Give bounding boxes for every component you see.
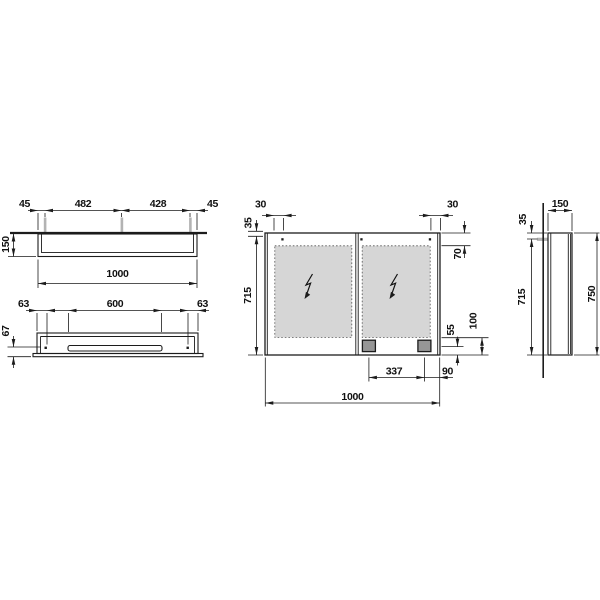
dim-label-total-height: 750: [586, 285, 598, 302]
side-view: 150 35 715 750: [516, 198, 600, 378]
dim-arrow: [12, 249, 16, 257]
dim-label-edge-right: 45: [207, 198, 219, 210]
dim-arrow: [12, 357, 16, 365]
dim-arrow: [595, 233, 599, 241]
dim-label-socket-edge: 90: [442, 366, 454, 378]
power-socket: [418, 340, 431, 351]
mounting-clip: [121, 218, 124, 234]
dim-arrow: [432, 401, 440, 405]
dim-arrow: [416, 376, 424, 380]
bottom-view: 63 600 63 67: [0, 298, 209, 368]
dim-arrow: [456, 339, 460, 347]
dim-label-door-height: 715: [516, 288, 528, 305]
dim-label-clip-span-right: 428: [150, 198, 167, 210]
dim-label-top-offset: 35: [243, 217, 255, 229]
dim-arrow: [12, 339, 16, 347]
dim-label-depth: 150: [0, 236, 12, 253]
dim-label-bottom-zone: 100: [468, 312, 480, 329]
dim-arrow: [47, 309, 55, 313]
cabinet-side-inner: [551, 234, 571, 355]
mirror-door-right: [362, 246, 430, 338]
dim-arrow: [595, 347, 599, 355]
dim-arrow: [189, 282, 197, 286]
dim-arrow: [29, 309, 37, 313]
dim-arrow: [12, 234, 16, 242]
dim-label-front-offset: 67: [0, 325, 12, 337]
top-view: 45 482 428 45 150 1000: [0, 198, 218, 288]
dim-arrow: [266, 214, 274, 218]
front-view: 30 30 35 715 70 55 100 337 90 1000: [242, 199, 489, 407]
screw-hole: [45, 347, 47, 349]
dim-arrow: [530, 347, 534, 355]
dim-label-socket-span: 337: [386, 366, 403, 378]
dim-label-edge-left: 45: [19, 198, 31, 210]
drawing-page: 45 482 428 45 150 1000 63 600 63 67: [0, 0, 600, 600]
hinge-pin-dot: [281, 238, 283, 240]
dim-label-hinge-left: 30: [255, 199, 267, 211]
dim-arrow: [265, 401, 273, 405]
mounting-clip: [189, 218, 192, 234]
dim-arrow: [255, 347, 259, 355]
cabinet-body-inner: [42, 234, 194, 253]
dim-arrow: [480, 347, 484, 355]
dim-label-width: 1000: [341, 391, 364, 403]
dim-arrow: [30, 209, 38, 213]
dim-label-door-height: 715: [242, 287, 254, 304]
dim-arrow: [480, 338, 484, 346]
dim-label-edge-left: 63: [18, 298, 30, 310]
dim-arrow: [255, 223, 259, 231]
dim-arrow: [530, 225, 534, 233]
hinge-pin-dot: [429, 238, 431, 240]
dim-arrow: [154, 309, 162, 313]
dimension-lines: [8, 311, 210, 369]
dim-arrow: [182, 209, 190, 213]
power-socket: [362, 340, 375, 351]
dim-arrow: [530, 239, 534, 247]
mounting-clip: [44, 218, 47, 234]
dim-label-edge-right: 63: [197, 298, 209, 310]
screw-hole: [187, 347, 189, 349]
technical-drawing: 45 482 428 45 150 1000 63 600 63 67: [0, 0, 600, 600]
light-slot: [68, 346, 162, 352]
dim-arrow: [255, 236, 259, 244]
dim-label-depth: 150: [552, 198, 569, 210]
hinge-pin-dot: [360, 238, 362, 240]
front-panel-edge: [33, 354, 203, 357]
dim-arrow: [456, 355, 460, 363]
dim-arrow: [38, 282, 46, 286]
dim-arrow: [69, 309, 77, 313]
dim-label-top-offset: 35: [517, 214, 529, 226]
dim-label-lamp-height: 70: [452, 248, 464, 260]
dim-arrow: [423, 214, 431, 218]
dim-label-socket-height: 55: [445, 324, 457, 336]
dim-arrow: [441, 214, 449, 218]
dim-arrow: [284, 214, 292, 218]
dim-arrow: [197, 209, 205, 213]
dim-label-width: 1000: [106, 268, 129, 280]
dim-arrow: [122, 209, 130, 213]
dim-arrow: [369, 376, 377, 380]
dim-label-clip-span-left: 482: [75, 198, 92, 210]
dim-arrow: [463, 225, 467, 233]
dim-arrow: [114, 209, 122, 213]
dim-arrow: [180, 309, 188, 313]
cabinet-body-outline: [38, 234, 197, 257]
dimension-lines: [527, 211, 600, 356]
dim-label-slot-width: 600: [107, 298, 124, 310]
mirror-door-left: [275, 246, 352, 338]
dim-label-hinge-right: 30: [447, 199, 459, 211]
dim-arrow: [45, 209, 53, 213]
